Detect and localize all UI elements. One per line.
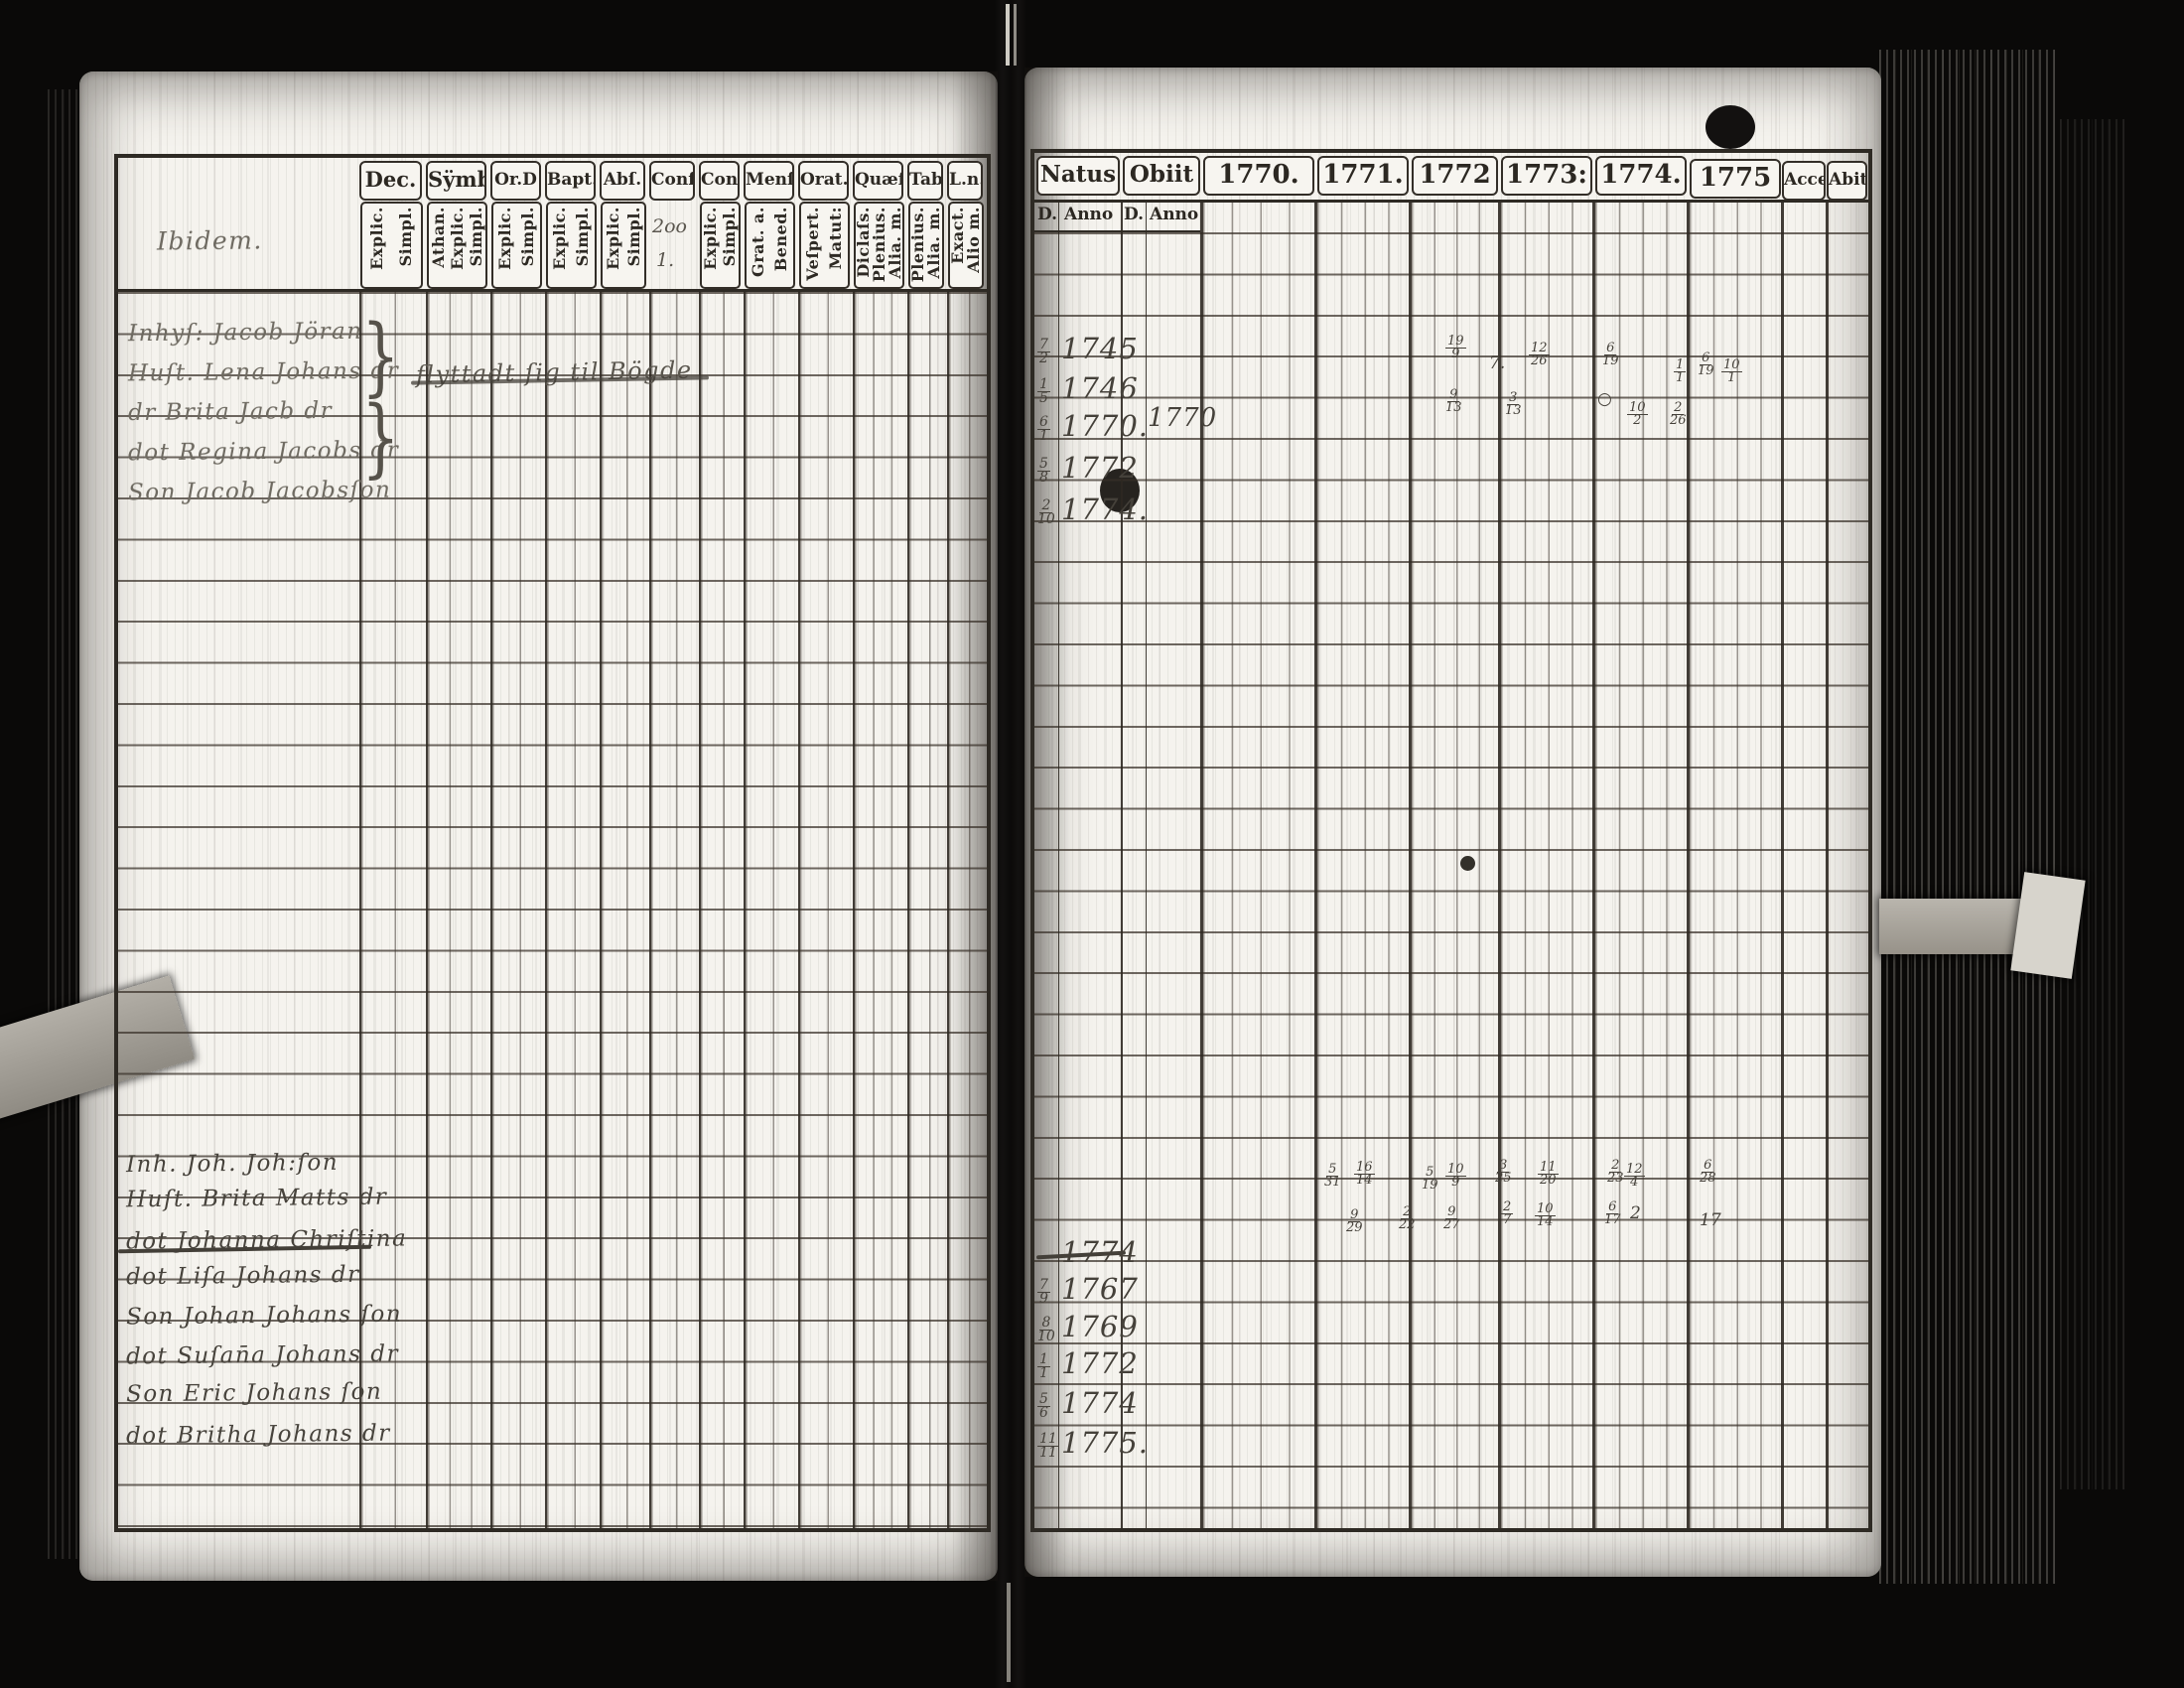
film-clip-right-end	[2010, 872, 2085, 979]
resident-name: dot Liſa Johans dr	[126, 1262, 360, 1290]
natus-year: 1772	[1061, 1346, 1139, 1380]
attendance-mark: 1226	[1529, 337, 1550, 368]
attendance-mark: 102	[1627, 396, 1648, 428]
attendance-mark: 17	[1700, 1210, 1721, 1230]
attendance-mark: 617	[1604, 1196, 1621, 1227]
attendance-mark: 619	[1698, 347, 1714, 378]
natus-year: 1745	[1061, 332, 1139, 365]
attendance-mark: 628	[1700, 1154, 1716, 1186]
natus-year: 1767	[1061, 1272, 1139, 1306]
attendance-mark: 531	[1324, 1158, 1341, 1190]
attendance-mark: 929	[1346, 1203, 1363, 1235]
resident-name: Son Eric Johans ſon	[126, 1379, 383, 1408]
natus-day: 58	[1037, 453, 1050, 486]
attendance-mark: 101	[1721, 353, 1742, 385]
attendance-mark: 927	[1443, 1200, 1460, 1232]
natus-day: 61	[1037, 411, 1050, 444]
conf-mark-2: 1.	[656, 249, 674, 271]
attendance-mark: 913	[1445, 383, 1462, 415]
resident-name: dot Britha Johans dr	[126, 1421, 391, 1450]
resident-name: Inhyſ: Jacob Jöran	[128, 319, 363, 347]
natus-day: 56	[1037, 1388, 1050, 1421]
natus-year: 1770.	[1061, 409, 1149, 443]
ink-blob-top-right	[1706, 105, 1755, 149]
natus-year: 1746	[1061, 371, 1139, 405]
right-entries: 721745151746611770.5817722101774.1774791…	[1034, 153, 1868, 1528]
attendance-mark: ○	[1597, 389, 1612, 409]
attendance-mark: 1014	[1535, 1197, 1556, 1229]
row-brace-2: }	[361, 388, 399, 488]
attendance-mark: 2	[1630, 1203, 1641, 1223]
attendance-table: Natus Obiit 1770. 1771. 1772 1773: 1774.…	[1030, 149, 1872, 1532]
attendance-mark: 124	[1624, 1158, 1645, 1190]
attendance-mark: 27	[1501, 1196, 1513, 1227]
attendance-mark: 519	[1422, 1161, 1438, 1193]
natus-day: 72	[1037, 334, 1050, 366]
attendance-mark: 325	[1495, 1154, 1512, 1186]
natus-day: 11	[1037, 1348, 1050, 1381]
attendance-mark: 223	[1607, 1154, 1624, 1186]
examination-table: Dec.Explic.Simpl.Sÿmb.Athan.Explic.Simpl…	[114, 154, 991, 1532]
resident-name: Huſt. Brita Matts dr	[126, 1185, 388, 1213]
natus-year: 1772	[1061, 451, 1139, 485]
natus-year: 1775.	[1061, 1426, 1149, 1460]
resident-name: dr Brita Jacb dr	[128, 398, 333, 426]
natus-day: 15	[1037, 373, 1050, 406]
natus-day: 79	[1037, 1274, 1050, 1307]
attendance-mark: 226	[1670, 396, 1687, 428]
attendance-mark: 199	[1445, 330, 1466, 361]
conf-mark-1: 2oo	[652, 215, 687, 237]
resident-name: Inh. Joh. Joh:ſon	[126, 1150, 339, 1178]
attendance-mark: 1614	[1354, 1156, 1375, 1188]
spine-highlight-bottom	[1007, 1583, 1011, 1682]
attendance-mark: 1120	[1538, 1156, 1559, 1188]
spine-highlight-top-2	[1014, 4, 1017, 66]
resident-name: Son Johan Johans ſon	[126, 1302, 402, 1331]
attendance-mark: 313	[1505, 386, 1522, 418]
attendance-mark: 11	[1674, 353, 1686, 385]
attendance-mark: 7.	[1489, 353, 1505, 373]
obiit-year-entry: 1770	[1148, 403, 1217, 433]
attendance-mark: 109	[1445, 1158, 1466, 1190]
natus-year: 1774.	[1061, 492, 1149, 526]
natus-day: 1111	[1037, 1428, 1059, 1461]
natus-day: 810	[1037, 1312, 1055, 1344]
book-gutter	[995, 0, 1026, 1688]
microfilm-scan: Ibidem. Dec.Explic.Simpl.Sÿmb.Athan.Expl…	[0, 0, 2184, 1688]
attendance-mark: 619	[1602, 337, 1619, 368]
natus-year: 1769	[1061, 1310, 1139, 1343]
spine-highlight-top	[1006, 4, 1010, 66]
film-streaks-right	[1879, 50, 2058, 1584]
film-clip-right	[1879, 899, 2030, 954]
attendance-mark: 222	[1399, 1200, 1416, 1232]
natus-day: 210	[1037, 494, 1055, 527]
resident-name: Huſt. Lena Johans dr	[128, 358, 399, 387]
film-streaks-left	[48, 89, 81, 1559]
natus-year: 1774	[1061, 1386, 1139, 1420]
resident-name: dot Regina Jacobs dr	[128, 438, 399, 467]
resident-name: Son Jacob Jacobsſon	[128, 478, 392, 506]
resident-name: dot Suſan̄a Johans dr	[126, 1341, 399, 1370]
film-streaks-far-right	[2060, 119, 2129, 1489]
